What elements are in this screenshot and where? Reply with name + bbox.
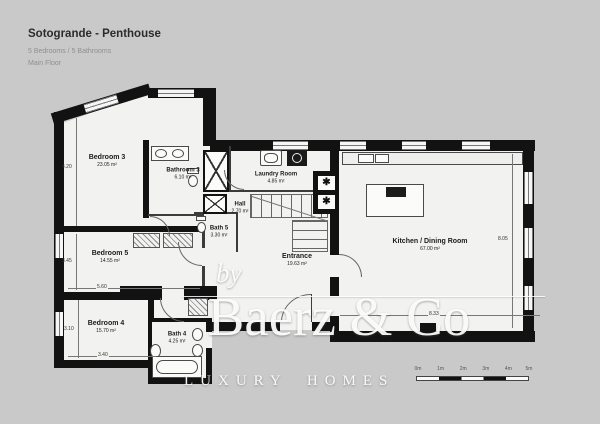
window bbox=[524, 172, 533, 204]
window bbox=[524, 286, 533, 310]
kitchen-sink-icon bbox=[375, 154, 389, 163]
room-name: Bathroom 3 bbox=[166, 168, 199, 175]
room-label-bedroom5: Bedroom 5 14.55 m² bbox=[92, 250, 129, 264]
window bbox=[402, 141, 426, 150]
room-label-laundry: Laundry Room 4.85 m² bbox=[255, 172, 297, 185]
room-name: Hall bbox=[232, 202, 249, 209]
room-area: 15.70 m² bbox=[88, 328, 125, 334]
dimension-label: 8.05 bbox=[497, 236, 509, 242]
door-opening bbox=[330, 255, 339, 277]
floor-label: Main Floor bbox=[28, 60, 61, 67]
dimension-line bbox=[76, 234, 77, 290]
room-label-entrance: Entrance 19.63 m² bbox=[282, 253, 312, 267]
floorplan-canvas: ✱ ✱ 4.20 3.45 3.10 5.60 3.40 8.33 8.05 B… bbox=[0, 0, 600, 424]
toilet-icon bbox=[197, 222, 206, 233]
scale-label: 5m bbox=[526, 366, 533, 372]
scale-label: 4m bbox=[505, 366, 512, 372]
scale-bar-segments bbox=[416, 376, 529, 381]
dimension-label: 4.20 bbox=[62, 164, 72, 170]
wall-bath5-right bbox=[236, 212, 238, 252]
wall-bed4-right bbox=[148, 296, 154, 318]
shaft-marker-icon: ✱ bbox=[316, 174, 337, 192]
room-label-bath5: Bath 5 3.30 m² bbox=[210, 226, 228, 239]
bathtub-icon bbox=[156, 360, 198, 374]
window bbox=[273, 141, 308, 150]
dimension-line bbox=[68, 356, 156, 357]
room-name: Bath 5 bbox=[210, 226, 228, 233]
room-area: 4.85 m² bbox=[255, 179, 297, 185]
room-area: 23.05 m² bbox=[89, 162, 126, 168]
shaft-marker-icon: ✱ bbox=[316, 193, 337, 211]
room-area: 6.10 m² bbox=[166, 175, 199, 181]
room-label-bedroom3: Bedroom 3 23.05 m² bbox=[89, 154, 126, 168]
watermark-tagline: LUXURY HOMES bbox=[184, 373, 394, 390]
wall-bed3-bath3 bbox=[143, 140, 149, 218]
wall-bed4-bottom bbox=[54, 360, 154, 368]
window bbox=[340, 141, 366, 150]
room-label-hall: Hall 2.70 m² bbox=[232, 202, 249, 215]
scale-bar: 0m 1m 2m 3m 4m 5m bbox=[416, 366, 531, 382]
watermark-by: by bbox=[216, 258, 241, 289]
page-subtitle: 5 Bedrooms / 5 Bathrooms bbox=[28, 48, 111, 55]
dimension-line bbox=[76, 118, 77, 226]
window bbox=[55, 234, 63, 258]
page-title: Sotogrande - Penthouse bbox=[28, 28, 161, 40]
kitchen-sink-icon bbox=[358, 154, 374, 163]
dryer-icon bbox=[292, 153, 302, 163]
dimension-label: 3.45 bbox=[62, 258, 72, 264]
room-area: 19.63 m² bbox=[282, 261, 312, 267]
room-area: 14.55 m² bbox=[92, 258, 129, 264]
wall-laundry-bottom bbox=[217, 190, 313, 192]
wall-bed3-bed5 bbox=[54, 226, 205, 232]
window bbox=[524, 228, 533, 258]
dimension-label: 3.10 bbox=[64, 326, 74, 332]
room-name: Kitchen / Dining Room bbox=[392, 238, 467, 246]
wall-corridor bbox=[202, 232, 205, 248]
window bbox=[158, 89, 194, 97]
window bbox=[462, 141, 490, 150]
window bbox=[55, 312, 63, 336]
wall-bed5-bed4 bbox=[54, 292, 124, 300]
dimension-label: 5.60 bbox=[96, 284, 108, 290]
room-area: 2.70 m² bbox=[232, 209, 249, 215]
room-area: 67.00 m² bbox=[392, 246, 467, 252]
staircase-lower-flight bbox=[292, 220, 328, 252]
room-name: Bedroom 4 bbox=[88, 320, 125, 328]
room-name: Laundry Room bbox=[255, 172, 297, 179]
wall-chunk bbox=[203, 88, 216, 146]
cooktop-icon bbox=[386, 187, 406, 197]
scale-label: 3m bbox=[482, 366, 489, 372]
room-label-bedroom4: Bedroom 4 15.70 m² bbox=[88, 320, 125, 334]
room-area: 3.30 m² bbox=[210, 233, 228, 239]
shaft-box-icon bbox=[203, 194, 227, 214]
scale-label: 1m bbox=[437, 366, 444, 372]
room-name: Entrance bbox=[282, 253, 312, 261]
scale-label: 2m bbox=[460, 366, 467, 372]
room-label-bathroom3: Bathroom 3 6.10 m² bbox=[166, 168, 199, 181]
dimension-label: 3.40 bbox=[97, 352, 109, 358]
scale-label: 0m bbox=[415, 366, 422, 372]
washing-machine-icon bbox=[264, 153, 278, 163]
sink-icon bbox=[155, 149, 167, 158]
watermark-brand: Baerz & Co bbox=[155, 288, 523, 346]
toilet-icon bbox=[196, 216, 206, 221]
sink-icon bbox=[172, 149, 184, 158]
room-name: Bedroom 3 bbox=[89, 154, 126, 162]
room-label-kitchen: Kitchen / Dining Room 67.00 m² bbox=[392, 238, 467, 252]
room-name: Bedroom 5 bbox=[92, 250, 129, 258]
dimension-line bbox=[78, 300, 79, 358]
